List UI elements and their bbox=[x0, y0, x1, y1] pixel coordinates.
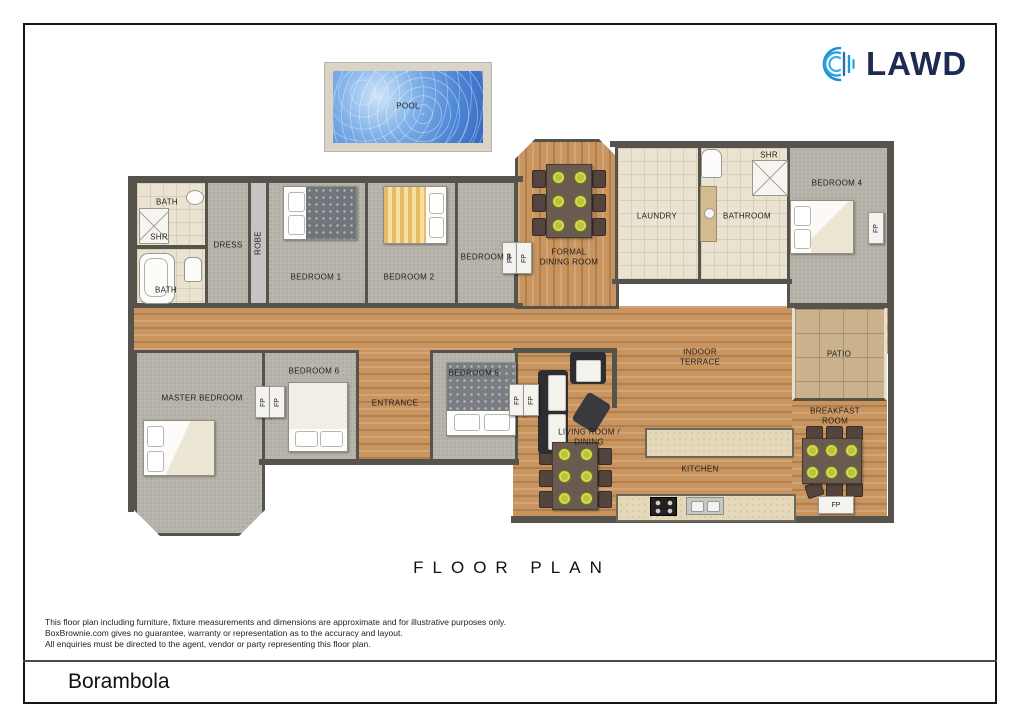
disclaimer-line-2: BoxBrownie.com gives no guarantee, warra… bbox=[45, 628, 506, 639]
brand-name: LAWD bbox=[866, 45, 967, 83]
bathtub bbox=[139, 253, 175, 304]
label-master-bedroom: MASTER BEDROOM bbox=[161, 393, 242, 403]
label-robe: ROBE bbox=[253, 231, 263, 255]
label-bedroom-6: BEDROOM 6 bbox=[289, 366, 340, 376]
label-bedroom-5: BEDROOM 5 bbox=[449, 368, 500, 378]
page-title: FLOOR PLAN bbox=[413, 558, 611, 578]
disclaimer-line-1: This floor plan including furniture, fix… bbox=[45, 617, 506, 628]
label-dress: DRESS bbox=[213, 240, 242, 250]
label-laundry: LAUNDRY bbox=[637, 211, 677, 221]
armchair bbox=[570, 352, 606, 384]
label-bedroom-2: BEDROOM 2 bbox=[384, 272, 435, 282]
label-bedroom-1: BEDROOM 1 bbox=[291, 272, 342, 282]
fingerprint-logo-icon bbox=[818, 44, 858, 84]
chair bbox=[592, 194, 606, 212]
label-bathroom: BATHROOM bbox=[723, 211, 771, 221]
brand-logo: LAWD bbox=[818, 44, 967, 84]
chair bbox=[539, 470, 553, 487]
chair bbox=[532, 194, 546, 212]
label-bedroom-3: BEDROOM 3 bbox=[461, 252, 512, 262]
chair bbox=[826, 483, 843, 497]
wall-segment bbox=[131, 303, 523, 308]
wall-segment bbox=[888, 141, 894, 523]
shower bbox=[752, 160, 788, 196]
chair bbox=[598, 448, 612, 465]
label-breakfast-room: BREAKFAST ROOM bbox=[805, 407, 865, 426]
stove bbox=[650, 497, 677, 516]
bed bbox=[283, 186, 357, 240]
label-pool: POOL bbox=[396, 101, 419, 111]
fireplace-badge: FP bbox=[269, 386, 285, 418]
breakfast-table bbox=[802, 438, 862, 484]
label-bath-bottom: BATH bbox=[155, 285, 177, 295]
wall-segment bbox=[610, 141, 894, 147]
wall-segment bbox=[259, 459, 519, 465]
basin bbox=[186, 190, 204, 205]
chair bbox=[532, 170, 546, 188]
label-bath-top: BATH bbox=[156, 197, 178, 207]
fireplace-badge: FP bbox=[868, 212, 884, 244]
chair bbox=[598, 491, 612, 508]
kitchen-sink bbox=[686, 497, 724, 515]
fireplace-badge: FP bbox=[818, 496, 854, 514]
disclaimer: This floor plan including furniture, fix… bbox=[45, 617, 506, 650]
dining-table bbox=[546, 164, 592, 238]
chair bbox=[592, 218, 606, 236]
toilet bbox=[184, 257, 202, 282]
label-indoor-terrace: INDOOR TERRACE bbox=[670, 348, 730, 367]
property-name: Borambola bbox=[68, 670, 170, 694]
wall-segment bbox=[612, 279, 792, 284]
bed bbox=[790, 200, 854, 254]
kitchen-island bbox=[645, 428, 794, 458]
wall-segment bbox=[131, 176, 523, 182]
dining-table bbox=[552, 442, 598, 510]
label-bedroom-4: BEDROOM 4 bbox=[812, 178, 863, 188]
wall-segment bbox=[612, 352, 617, 408]
chair bbox=[592, 170, 606, 188]
vanity bbox=[700, 186, 717, 242]
chair bbox=[846, 483, 863, 497]
chair bbox=[539, 491, 553, 508]
wall-segment bbox=[128, 346, 134, 512]
bed bbox=[383, 186, 447, 244]
label-living-room-dining: LIVING ROOM / DINING bbox=[550, 428, 628, 447]
label-formal-dining-room: FORMAL DINING ROOM bbox=[536, 248, 602, 267]
wall-segment bbox=[787, 303, 894, 308]
toilet bbox=[701, 149, 722, 178]
disclaimer-line-3: All enquiries must be directed to the ag… bbox=[45, 639, 506, 650]
label-entrance: ENTRANCE bbox=[372, 398, 418, 408]
wall-segment bbox=[128, 176, 134, 356]
bed bbox=[143, 420, 215, 476]
fireplace-badge: FP bbox=[523, 384, 539, 416]
label-shr-right: SHR bbox=[760, 150, 778, 160]
chair bbox=[598, 470, 612, 487]
footer-bar: Borambola bbox=[23, 660, 997, 704]
chair bbox=[532, 218, 546, 236]
floor-plan-page: LAWD POOL bbox=[0, 0, 1024, 725]
bed bbox=[288, 382, 348, 452]
label-patio: PATIO bbox=[827, 349, 851, 359]
label-kitchen: KITCHEN bbox=[681, 464, 718, 474]
fireplace-badge: FP bbox=[516, 242, 532, 274]
label-shr-left: SHR bbox=[150, 232, 168, 242]
